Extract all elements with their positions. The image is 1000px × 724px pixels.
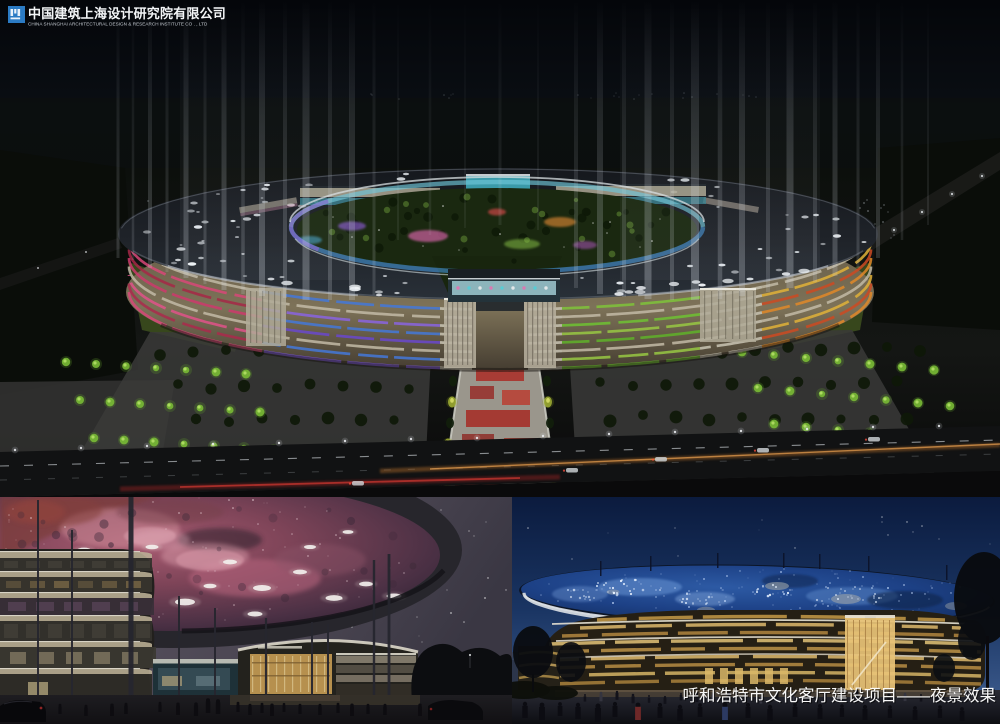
svg-text:呼和浩特市文化客厅建设项目——夜景效果: 呼和浩特市文化客厅建设项目——夜景效果 [683,686,997,705]
svg-text:中国建筑上海设计研究院有限公司: 中国建筑上海设计研究院有限公司 [28,6,226,21]
svg-text:CHINA SHANGHAI ARCHITECTURAL D: CHINA SHANGHAI ARCHITECTURAL DESIGN & RE… [28,22,208,27]
